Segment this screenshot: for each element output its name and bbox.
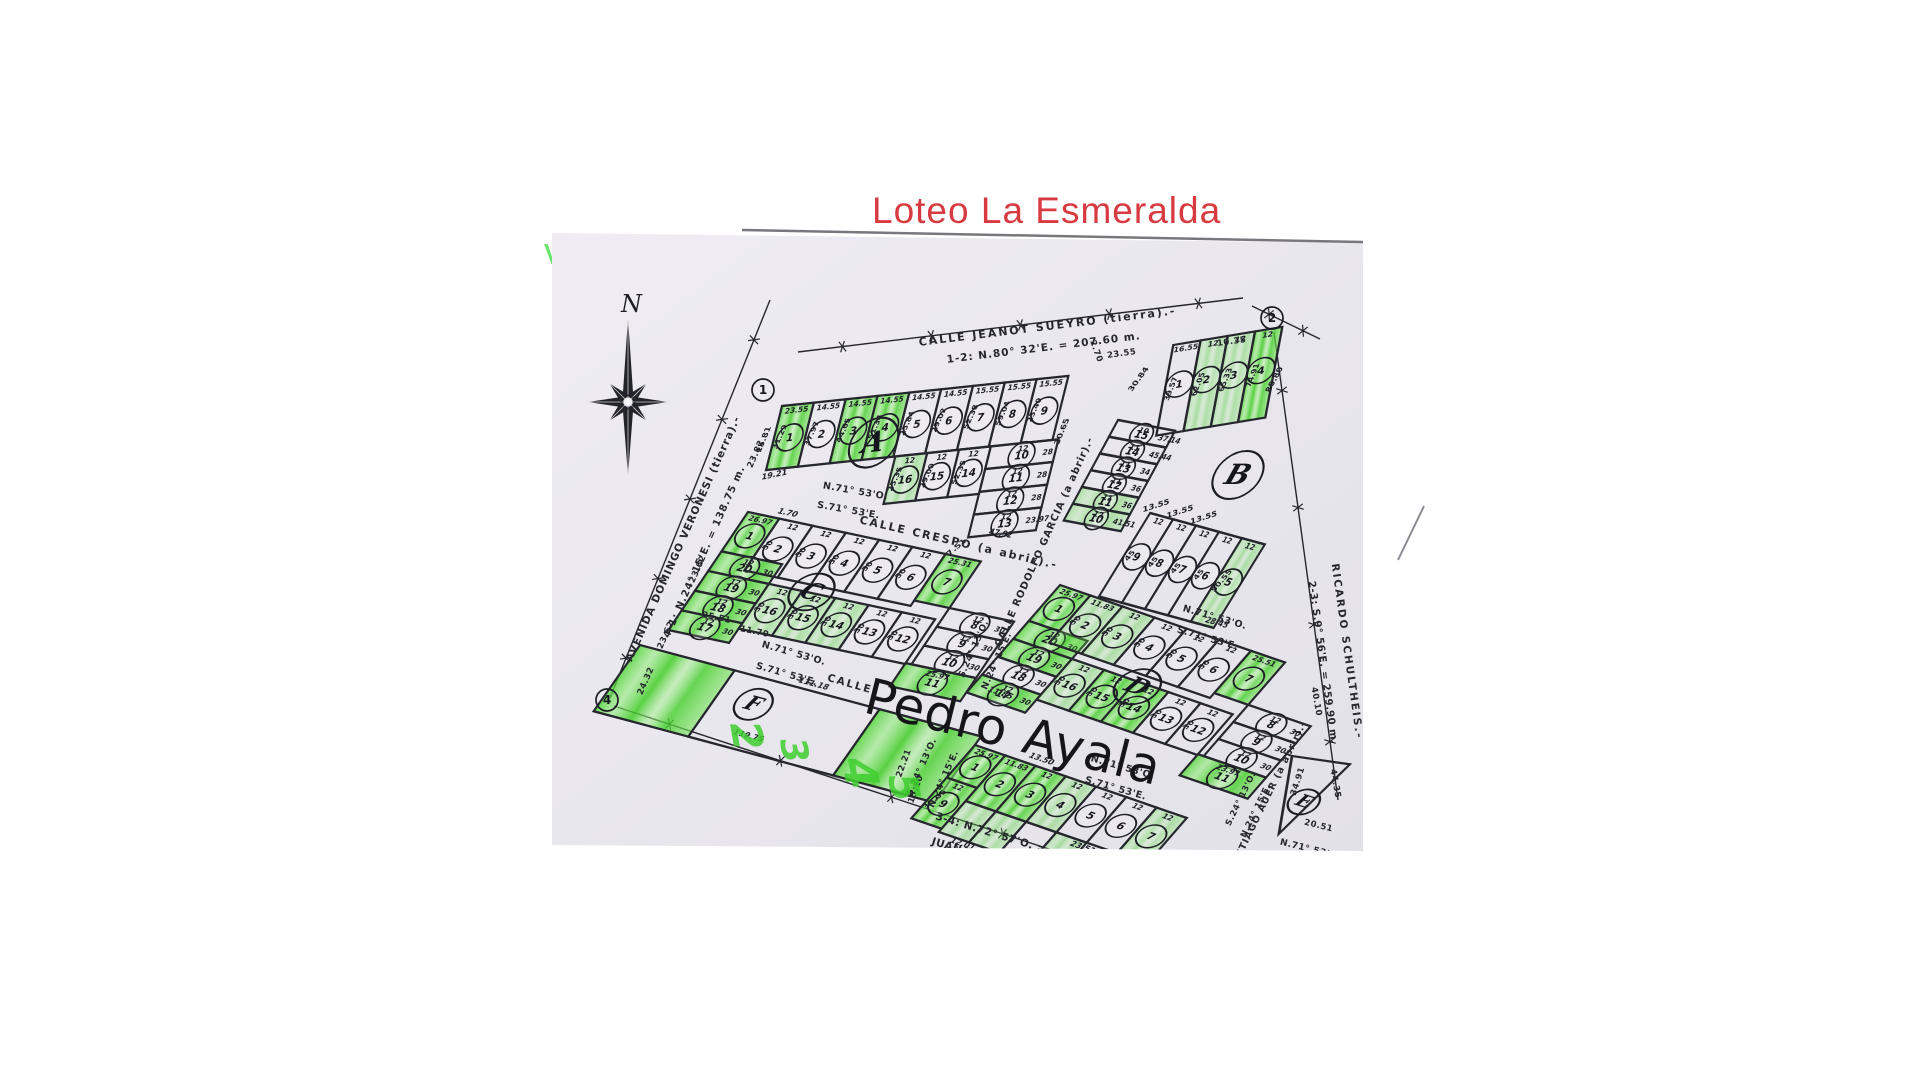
corner-number: 2 — [1268, 311, 1276, 325]
corner-number: 1 — [759, 383, 767, 397]
compass-north-label: N — [620, 290, 643, 318]
corner-number: 4 — [603, 693, 611, 707]
plat-photo: Loteo La Esmeralda vendido N123.5531.292… — [0, 0, 1920, 1080]
pencil-mark — [1398, 506, 1424, 560]
plat-map-svg: N123.5531.29214.5537.97314.5544.65414.55… — [0, 0, 1920, 1080]
